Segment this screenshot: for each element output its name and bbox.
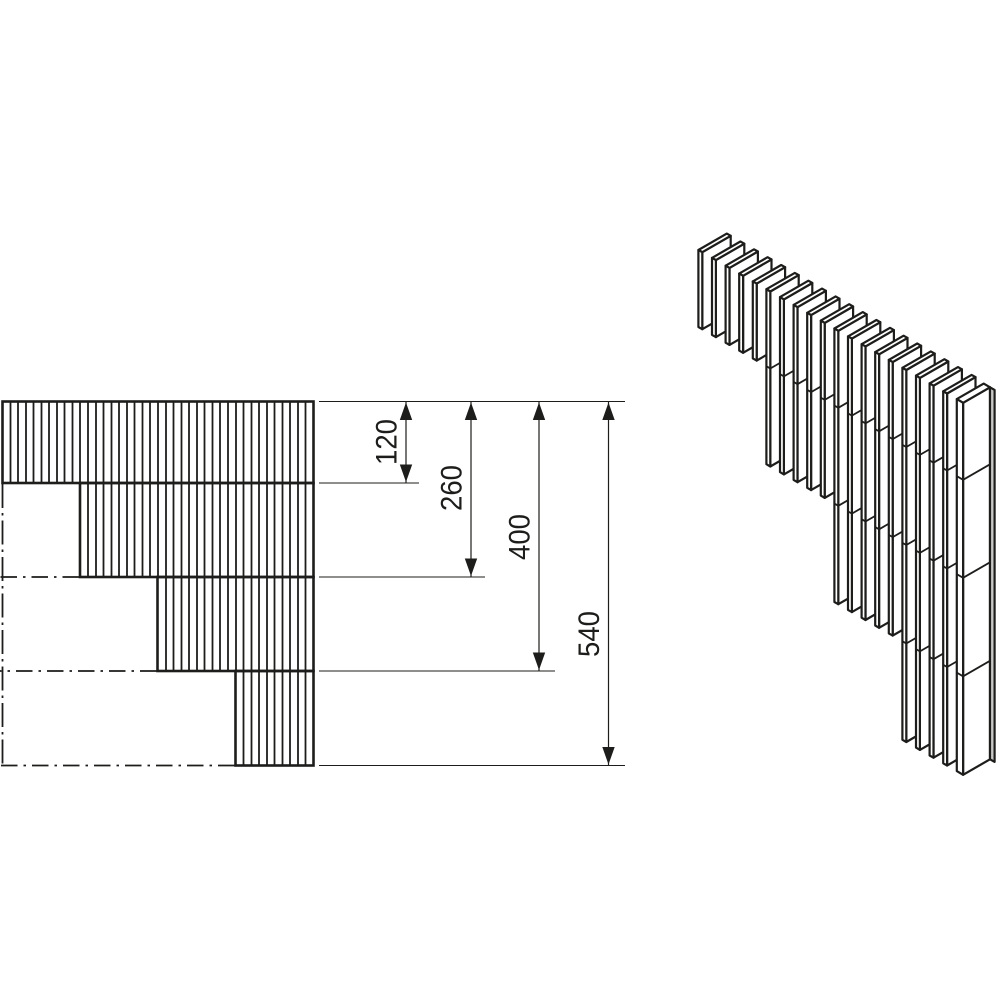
svg-text:540: 540: [573, 611, 606, 657]
svg-text:400: 400: [504, 514, 537, 560]
svg-text:120: 120: [371, 419, 404, 465]
svg-text:260: 260: [436, 465, 469, 511]
